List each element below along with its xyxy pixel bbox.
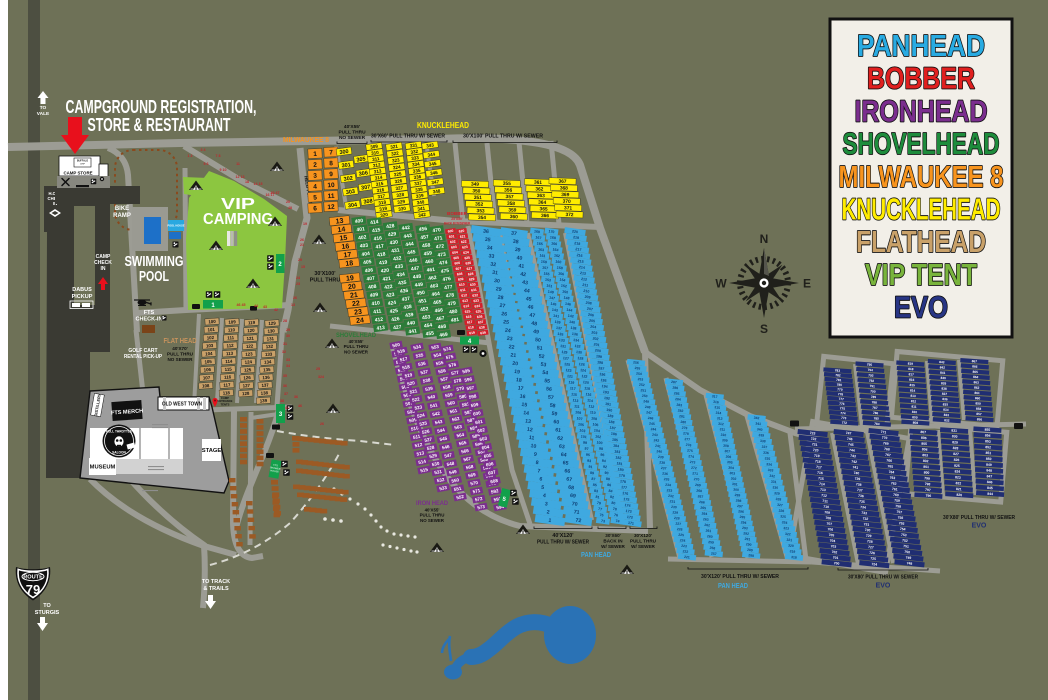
svg-text:841: 841: [940, 371, 946, 375]
svg-text:PAN HEAD: PAN HEAD: [581, 550, 611, 559]
svg-text:632: 632: [472, 293, 478, 298]
svg-text:356: 356: [504, 187, 513, 193]
svg-text:720: 720: [813, 448, 819, 453]
svg-text:219: 219: [573, 235, 579, 240]
svg-text:729: 729: [866, 534, 872, 539]
svg-text:30'X100': 30'X100': [314, 271, 335, 277]
svg-text:129: 129: [268, 321, 276, 327]
svg-text:196: 196: [599, 372, 605, 377]
svg-text:448: 448: [412, 274, 421, 281]
svg-text:43: 43: [263, 305, 267, 309]
svg-text:186: 186: [611, 432, 617, 437]
svg-text:102: 102: [595, 434, 601, 439]
svg-text:826: 826: [954, 458, 960, 462]
svg-text:16: 16: [519, 394, 526, 401]
svg-text:TENTS: TENTS: [221, 402, 230, 406]
svg-text:117: 117: [223, 382, 231, 388]
svg-text:701: 701: [833, 556, 839, 561]
svg-text:34: 34: [486, 245, 493, 252]
svg-text:476: 476: [442, 276, 451, 283]
svg-text:250: 250: [642, 394, 648, 399]
svg-text:119: 119: [248, 320, 256, 326]
svg-text:831: 831: [951, 429, 957, 433]
svg-text:52: 52: [538, 354, 545, 361]
svg-text:434: 434: [396, 272, 405, 279]
svg-text:157: 157: [542, 266, 548, 271]
svg-text:854: 854: [985, 433, 991, 437]
svg-text:620: 620: [458, 229, 464, 234]
svg-text:825: 825: [954, 464, 960, 468]
svg-text:634: 634: [474, 304, 480, 309]
svg-text:822: 822: [955, 481, 961, 485]
svg-text:30: 30: [286, 334, 290, 338]
svg-text:IRON HEAD: IRON HEAD: [416, 500, 448, 507]
svg-text:115: 115: [224, 367, 232, 373]
svg-text:711: 711: [822, 499, 828, 504]
svg-text:801: 801: [923, 465, 929, 469]
svg-text:19: 19: [514, 369, 521, 376]
svg-text:770: 770: [882, 436, 888, 441]
svg-text:857: 857: [976, 412, 982, 416]
svg-text:236: 236: [662, 472, 668, 477]
svg-text:146: 146: [565, 302, 571, 307]
svg-text:160: 160: [555, 260, 561, 265]
svg-text:195: 195: [600, 378, 606, 383]
svg-text:123: 123: [245, 351, 253, 357]
svg-text:16: 16: [341, 243, 350, 251]
svg-text:127: 127: [242, 383, 250, 389]
svg-text:35: 35: [484, 237, 491, 244]
svg-text:294: 294: [741, 520, 747, 525]
svg-text:86: 86: [607, 483, 612, 488]
svg-text:40: 40: [516, 255, 523, 262]
svg-text:766: 766: [886, 458, 892, 463]
svg-text:3 4: 3 4: [201, 148, 206, 152]
svg-text:133: 133: [559, 338, 565, 343]
svg-text:612: 612: [461, 293, 467, 298]
svg-text:47: 47: [529, 313, 536, 320]
svg-text:45: 45: [525, 296, 532, 303]
svg-text:21: 21: [510, 352, 517, 359]
svg-text:829: 829: [952, 440, 958, 444]
svg-text:PAN HEAD: PAN HEAD: [718, 581, 748, 590]
svg-text:23: 23: [296, 282, 300, 286]
svg-text:25'X50': 25'X50': [451, 217, 463, 221]
svg-text:628: 628: [468, 272, 474, 277]
svg-text:861: 861: [974, 391, 980, 395]
svg-text:441: 441: [408, 328, 417, 335]
svg-text:754: 754: [900, 527, 906, 532]
svg-text:606: 606: [454, 261, 460, 266]
svg-text:406: 406: [364, 267, 373, 274]
svg-text:39: 39: [514, 247, 521, 254]
svg-text:30'X60' PULL THRU W/ SEWER: 30'X60' PULL THRU W/ SEWER: [371, 134, 445, 140]
svg-text:742: 742: [851, 460, 857, 465]
svg-text:154: 154: [559, 278, 565, 283]
svg-text:357: 357: [505, 194, 514, 200]
svg-text:27: 27: [499, 303, 506, 310]
svg-text:15: 15: [301, 265, 305, 269]
svg-text:168: 168: [550, 235, 556, 240]
svg-text:814: 814: [910, 388, 916, 392]
svg-text:266: 266: [699, 500, 705, 505]
svg-text:366: 366: [541, 213, 550, 219]
svg-text:438: 438: [403, 304, 412, 311]
svg-text:144: 144: [566, 308, 572, 313]
svg-text:163: 163: [538, 247, 544, 252]
svg-text:423: 423: [386, 292, 395, 299]
svg-text:743: 743: [850, 454, 856, 459]
svg-text:370: 370: [563, 199, 572, 205]
svg-text:782: 782: [835, 373, 841, 377]
svg-text:605: 605: [453, 256, 459, 261]
svg-text:752: 752: [902, 538, 908, 543]
svg-text:203: 203: [591, 330, 597, 335]
svg-text:731: 731: [863, 522, 869, 527]
svg-text:310: 310: [720, 433, 726, 438]
svg-text:MILWAUKEE 8: MILWAUKEE 8: [283, 135, 329, 144]
svg-text:18: 18: [245, 180, 249, 184]
svg-text:761: 761: [892, 487, 898, 492]
svg-text:865: 865: [972, 370, 978, 374]
svg-text:702: 702: [831, 550, 837, 555]
svg-text:461: 461: [426, 267, 435, 274]
svg-text:456: 456: [418, 226, 427, 233]
svg-text:139: 139: [554, 320, 560, 325]
svg-text:277: 277: [684, 437, 690, 442]
svg-text:162: 162: [554, 253, 560, 258]
svg-text:335: 335: [764, 456, 770, 461]
svg-text:601: 601: [449, 234, 455, 239]
svg-text:STURGIS: STURGIS: [35, 610, 60, 616]
svg-text:858: 858: [976, 407, 982, 411]
svg-text:803: 803: [922, 453, 928, 457]
svg-text:175: 175: [623, 497, 629, 502]
svg-text:150: 150: [562, 290, 568, 295]
svg-text:314: 314: [715, 411, 721, 416]
svg-text:627: 627: [466, 266, 472, 271]
svg-text:W/ SEWER: W/ SEWER: [601, 544, 625, 549]
svg-text:349: 349: [471, 182, 480, 188]
svg-text:636: 636: [477, 315, 483, 320]
svg-text:735: 735: [859, 499, 865, 504]
svg-text:301: 301: [341, 162, 351, 169]
svg-text:21: 21: [350, 292, 359, 300]
svg-text:455: 455: [425, 331, 434, 338]
svg-text:717: 717: [816, 465, 822, 470]
svg-text:816: 816: [909, 378, 915, 382]
svg-text:126: 126: [243, 375, 251, 381]
svg-text:442: 442: [401, 225, 410, 232]
svg-text:235: 235: [664, 477, 670, 482]
svg-text:313: 313: [717, 416, 723, 421]
svg-text:31: 31: [283, 342, 287, 346]
svg-text:836: 836: [942, 397, 948, 401]
svg-text:KNUCKLEHEAD: KNUCKLEHEAD: [842, 192, 1001, 227]
svg-text:12: 12: [526, 427, 533, 434]
svg-text:740: 740: [853, 471, 859, 476]
svg-text:297: 297: [737, 504, 743, 509]
svg-text:481: 481: [450, 317, 459, 324]
svg-text:124: 124: [580, 368, 586, 373]
svg-text:30'X80' PULL THRU W/ SEWER: 30'X80' PULL THRU W/ SEWER: [848, 575, 918, 581]
svg-text:140: 140: [569, 320, 575, 325]
svg-text:14 15: 14 15: [254, 182, 263, 186]
svg-text:231: 231: [669, 499, 675, 504]
svg-text:263: 263: [703, 517, 709, 522]
svg-text:CAMPING: CAMPING: [203, 211, 273, 228]
svg-text:306: 306: [725, 455, 731, 460]
svg-text:149: 149: [548, 290, 554, 295]
svg-text:848: 848: [986, 468, 992, 472]
svg-text:849: 849: [986, 463, 992, 467]
svg-text:137: 137: [556, 326, 562, 331]
svg-text:15: 15: [339, 235, 348, 243]
svg-text:401: 401: [356, 226, 365, 233]
svg-text:STAGE: STAGE: [202, 448, 222, 454]
svg-text:322: 322: [785, 532, 791, 537]
svg-text:30'X100' PULL THRU W/ SEWER: 30'X100' PULL THRU W/ SEWER: [463, 134, 543, 140]
svg-text:838: 838: [941, 387, 947, 391]
svg-text:863: 863: [973, 380, 979, 384]
svg-text:201: 201: [593, 342, 599, 347]
svg-text:473: 473: [437, 252, 446, 259]
svg-text:767: 767: [885, 453, 891, 458]
svg-text:20: 20: [286, 200, 290, 204]
svg-text:435: 435: [398, 280, 407, 287]
svg-text:107: 107: [576, 416, 582, 421]
svg-text:300: 300: [339, 149, 349, 156]
svg-text:38: 38: [280, 399, 284, 403]
svg-text:97: 97: [584, 447, 589, 452]
svg-text:238: 238: [659, 460, 665, 465]
svg-text:75: 75: [599, 513, 604, 518]
svg-text:36: 36: [294, 395, 298, 399]
svg-text:118: 118: [223, 390, 231, 396]
svg-text:89: 89: [590, 471, 595, 476]
svg-text:246: 246: [648, 416, 654, 421]
svg-text:61: 61: [555, 427, 562, 434]
svg-text:205: 205: [589, 319, 595, 324]
svg-text:722: 722: [811, 437, 817, 442]
svg-text:864: 864: [973, 375, 979, 379]
svg-text:402: 402: [358, 234, 367, 241]
svg-text:312: 312: [718, 422, 724, 427]
svg-text:474: 474: [439, 260, 448, 267]
svg-text:15: 15: [521, 402, 528, 409]
svg-text:470: 470: [432, 227, 441, 234]
svg-text:170: 170: [548, 229, 554, 234]
svg-text:18: 18: [345, 260, 354, 268]
svg-text:364: 364: [538, 200, 547, 206]
svg-text:176: 176: [622, 491, 628, 496]
svg-text:141: 141: [553, 314, 559, 319]
svg-text:336: 336: [763, 451, 769, 456]
svg-text:11: 11: [236, 162, 240, 166]
svg-text:265: 265: [700, 506, 706, 511]
svg-text:207: 207: [587, 307, 593, 312]
svg-text:308: 308: [723, 444, 729, 449]
svg-text:100: 100: [208, 319, 216, 325]
svg-text:304: 304: [728, 466, 734, 471]
svg-text:840: 840: [940, 376, 946, 380]
svg-text:472: 472: [435, 243, 444, 250]
svg-text:331: 331: [771, 480, 777, 485]
svg-text:PANHEAD: PANHEAD: [857, 28, 985, 63]
svg-text:793: 793: [868, 373, 874, 377]
svg-text:726: 726: [869, 551, 875, 556]
svg-text:41: 41: [285, 406, 289, 410]
svg-text:276: 276: [686, 443, 692, 448]
svg-text:776: 776: [839, 402, 845, 406]
svg-text:234: 234: [665, 483, 671, 488]
svg-text:167: 167: [535, 235, 541, 240]
svg-text:POOL HOUSE: POOL HOUSE: [167, 224, 185, 228]
svg-text:352: 352: [475, 202, 484, 208]
svg-text:121: 121: [246, 336, 254, 342]
svg-text:272: 272: [691, 466, 697, 471]
svg-text:12 13: 12 13: [236, 175, 245, 179]
svg-text:189: 189: [607, 414, 613, 419]
svg-text:622: 622: [461, 240, 467, 245]
svg-text:791: 791: [869, 384, 875, 388]
svg-text:414: 414: [370, 219, 379, 226]
svg-text:101: 101: [207, 327, 215, 333]
svg-text:718: 718: [815, 459, 821, 464]
svg-text:787: 787: [872, 406, 878, 410]
svg-text:454: 454: [424, 322, 433, 329]
svg-text:403: 403: [359, 243, 368, 250]
svg-text:139: 139: [260, 398, 268, 404]
svg-text:765: 765: [887, 464, 893, 469]
svg-text:233: 233: [666, 488, 672, 493]
svg-text:287: 287: [671, 380, 677, 385]
svg-text:84: 84: [608, 489, 613, 494]
svg-text:710: 710: [823, 505, 829, 510]
svg-text:13: 13: [335, 218, 344, 226]
svg-text:103: 103: [579, 428, 585, 433]
svg-text:412: 412: [374, 317, 383, 324]
svg-text:135: 135: [557, 332, 563, 337]
svg-text:24: 24: [356, 317, 365, 325]
svg-text:43: 43: [522, 280, 529, 287]
svg-text:122: 122: [246, 343, 254, 349]
svg-text:734: 734: [860, 505, 866, 510]
svg-text:159: 159: [541, 260, 547, 265]
svg-text:759: 759: [894, 498, 900, 503]
svg-text:147: 147: [549, 296, 555, 301]
svg-text:243: 243: [652, 433, 658, 438]
svg-text:289: 289: [747, 548, 753, 553]
svg-text:811: 811: [911, 405, 917, 409]
svg-text:426: 426: [391, 316, 400, 323]
svg-text:719: 719: [814, 454, 820, 459]
svg-text:418: 418: [377, 251, 386, 258]
svg-text:SALOON: SALOON: [112, 451, 126, 455]
svg-text:453: 453: [422, 314, 431, 321]
svg-text:459: 459: [423, 250, 432, 257]
svg-text:145: 145: [550, 302, 556, 307]
svg-text:119: 119: [568, 380, 574, 385]
svg-text:716: 716: [817, 471, 823, 476]
svg-text:BACK IN: BACK IN: [603, 538, 623, 543]
svg-text:789: 789: [871, 395, 877, 399]
svg-text:30'X60': 30'X60': [605, 533, 620, 538]
svg-text:46 45: 46 45: [237, 303, 246, 307]
svg-text:EVO: EVO: [894, 290, 948, 325]
svg-text:200: 200: [595, 348, 601, 353]
svg-text:153: 153: [545, 278, 551, 283]
svg-text:318: 318: [791, 555, 797, 560]
svg-text:110: 110: [228, 327, 236, 333]
svg-text:340: 340: [757, 427, 763, 432]
svg-text:733: 733: [861, 511, 867, 516]
svg-text:328: 328: [775, 497, 781, 502]
svg-text:202: 202: [592, 336, 598, 341]
svg-text:321: 321: [786, 538, 792, 543]
svg-text:132: 132: [266, 344, 274, 350]
svg-text:856: 856: [977, 417, 983, 421]
svg-text:280: 280: [680, 420, 686, 425]
svg-text:1 2: 1 2: [188, 154, 193, 158]
svg-text:802: 802: [923, 459, 929, 463]
svg-text:619: 619: [469, 331, 475, 336]
svg-text:307: 307: [724, 449, 730, 454]
svg-text:408: 408: [368, 284, 377, 291]
svg-text:405: 405: [363, 259, 372, 266]
svg-text:342: 342: [754, 416, 760, 421]
svg-text:317: 317: [712, 394, 718, 399]
svg-text:704: 704: [829, 539, 835, 544]
svg-text:PULL THRU W/ SEWER: PULL THRU W/ SEWER: [537, 540, 589, 546]
svg-text:EVO: EVO: [972, 523, 987, 530]
svg-text:23: 23: [354, 309, 363, 317]
svg-text:621: 621: [460, 234, 466, 239]
svg-text:51: 51: [536, 345, 543, 352]
svg-text:286: 286: [672, 386, 678, 391]
svg-text:101: 101: [581, 434, 587, 439]
svg-text:224: 224: [680, 538, 686, 543]
svg-text:11: 11: [528, 435, 534, 442]
svg-text:112: 112: [226, 343, 234, 349]
svg-text:798: 798: [925, 482, 931, 486]
svg-text:796: 796: [925, 494, 931, 498]
svg-text:415: 415: [372, 227, 381, 234]
svg-text:780: 780: [836, 383, 842, 387]
svg-text:292: 292: [743, 531, 749, 536]
svg-text:625: 625: [464, 256, 470, 261]
svg-text:113: 113: [226, 351, 234, 357]
svg-text:58: 58: [549, 403, 556, 410]
svg-text:PULL THRU: PULL THRU: [167, 351, 194, 356]
svg-text:131: 131: [560, 344, 566, 349]
svg-text:824: 824: [954, 469, 960, 473]
svg-text:40 47: 40 47: [271, 191, 280, 195]
svg-text:851: 851: [985, 451, 991, 455]
svg-text:190: 190: [606, 408, 612, 413]
svg-text:69: 69: [570, 493, 577, 500]
svg-text:166: 166: [551, 241, 557, 246]
svg-text:334: 334: [766, 462, 772, 467]
svg-text:82: 82: [610, 495, 615, 500]
svg-text:744: 744: [849, 448, 855, 453]
svg-text:867: 867: [971, 359, 977, 363]
svg-text:823: 823: [955, 475, 961, 479]
svg-text:786: 786: [873, 411, 879, 415]
svg-text:307: 307: [361, 184, 371, 191]
svg-text:PULL THRU: PULL THRU: [310, 278, 341, 284]
svg-text:225: 225: [678, 533, 684, 538]
